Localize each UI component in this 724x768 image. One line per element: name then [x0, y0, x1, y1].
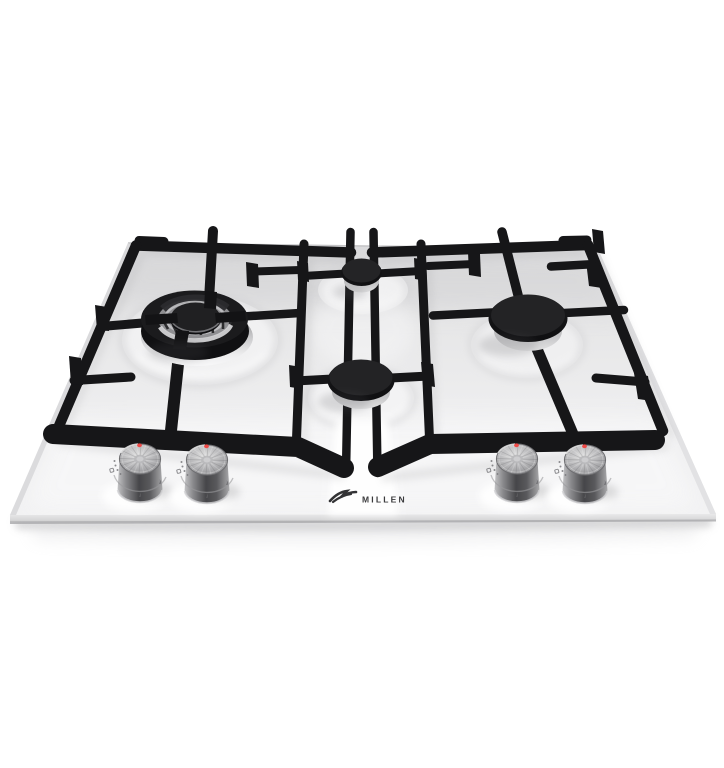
svg-text:MILLEN: MILLEN	[362, 495, 407, 505]
